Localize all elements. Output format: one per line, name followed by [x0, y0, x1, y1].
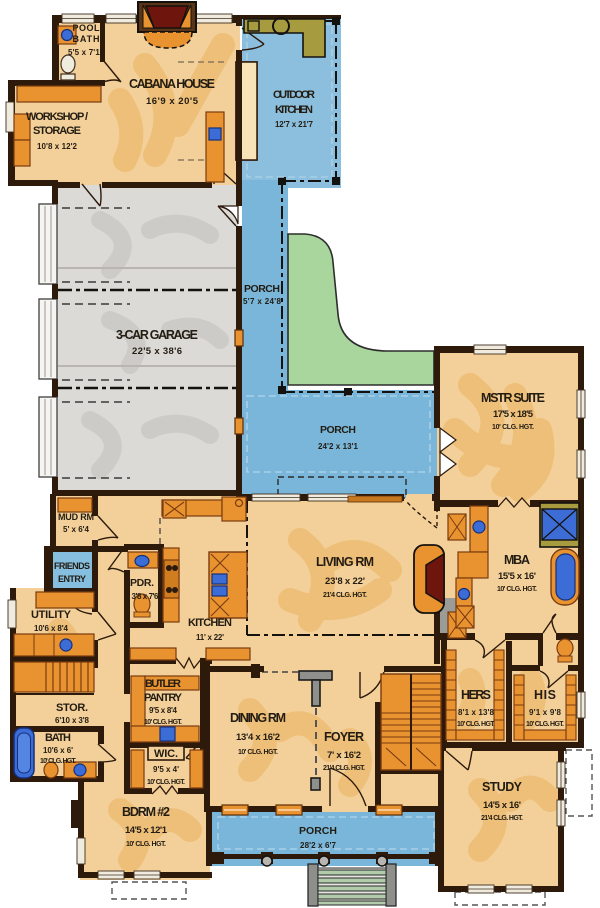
svg-text:5' x 6'4: 5' x 6'4 — [63, 525, 90, 534]
svg-text:10' CLG. HGT.: 10' CLG. HGT. — [40, 758, 76, 765]
svg-text:10' CLG. HGT.: 10' CLG. HGT. — [238, 749, 278, 756]
svg-text:23'8 x 22': 23'8 x 22' — [325, 576, 365, 587]
svg-text:10' CLG. HGT.: 10' CLG. HGT. — [147, 779, 185, 786]
svg-text:MSTR SUITE: MSTR SUITE — [481, 391, 545, 405]
svg-text:POOL: POOL — [73, 23, 101, 33]
svg-text:WORKSHOP /: WORKSHOP / — [26, 111, 88, 123]
svg-text:10' CLG. HGT.: 10' CLG. HGT. — [126, 841, 166, 848]
svg-text:10'6 x 6': 10'6 x 6' — [43, 746, 73, 755]
svg-text:10' CLG. HGT.: 10' CLG. HGT. — [497, 586, 537, 593]
svg-text:MBA: MBA — [504, 553, 530, 567]
svg-text:KITCHEN: KITCHEN — [188, 617, 232, 629]
svg-text:BUTLER: BUTLER — [145, 678, 181, 690]
svg-text:STORAGE: STORAGE — [33, 125, 81, 137]
svg-text:MUD RM: MUD RM — [58, 512, 94, 522]
svg-text:BATH: BATH — [45, 732, 71, 744]
svg-text:14'5 x 12'1: 14'5 x 12'1 — [125, 825, 168, 836]
svg-text:STOR.: STOR. — [56, 702, 88, 714]
svg-text:17'5 x 18'5: 17'5 x 18'5 — [493, 409, 534, 420]
svg-text:WIC.: WIC. — [154, 748, 178, 760]
svg-text:DINING RM: DINING RM — [230, 711, 286, 725]
svg-text:10' CLG. HGT.: 10' CLG. HGT. — [492, 424, 534, 431]
svg-text:12'7 x 21'7: 12'7 x 21'7 — [275, 120, 314, 129]
svg-text:21'4 CLG. HGT.: 21'4 CLG. HGT. — [323, 765, 365, 772]
svg-text:7' x 16'2: 7' x 16'2 — [327, 750, 361, 761]
svg-text:5'7 x 24'8: 5'7 x 24'8 — [243, 297, 282, 306]
svg-text:10' CLG. HGT.: 10' CLG. HGT. — [526, 721, 564, 728]
svg-text:28'2 x 6'7: 28'2 x 6'7 — [300, 841, 337, 850]
svg-text:10'6 x 8'4: 10'6 x 8'4 — [34, 624, 69, 633]
svg-text:FOYER: FOYER — [324, 730, 364, 744]
svg-text:PDR.: PDR. — [130, 577, 154, 589]
svg-text:BATH: BATH — [73, 34, 100, 44]
svg-text:OUTDOOR: OUTDOOR — [273, 89, 315, 101]
svg-text:21'4 CLG. HGT.: 21'4 CLG. HGT. — [481, 815, 523, 822]
svg-text:21'4 CLG. HGT.: 21'4 CLG. HGT. — [323, 592, 367, 599]
svg-text:PORCH: PORCH — [244, 283, 280, 295]
svg-text:10' CLG. HGT.: 10' CLG. HGT. — [457, 721, 495, 728]
svg-text:LIVING RM: LIVING RM — [316, 555, 374, 569]
svg-text:PANTRY: PANTRY — [144, 692, 183, 704]
svg-text:3-CAR GARAGE: 3-CAR GARAGE — [116, 328, 198, 342]
svg-text:PORCH: PORCH — [320, 424, 356, 436]
svg-text:HIS: HIS — [534, 688, 556, 702]
svg-text:9'5 x 4': 9'5 x 4' — [153, 765, 179, 774]
svg-text:6'10 x 3'8: 6'10 x 3'8 — [55, 716, 90, 725]
svg-text:11' x 22': 11' x 22' — [196, 633, 224, 642]
svg-text:HERS: HERS — [461, 688, 491, 702]
svg-text:UTILITY: UTILITY — [31, 609, 72, 621]
svg-text:3'8 x 7'6: 3'8 x 7'6 — [132, 592, 160, 601]
svg-text:BDRM #2: BDRM #2 — [122, 805, 170, 819]
svg-text:FRIENDS: FRIENDS — [54, 561, 90, 571]
svg-text:10' CLG. HGT.: 10' CLG. HGT. — [144, 719, 182, 726]
svg-text:PORCH: PORCH — [299, 825, 337, 837]
svg-text:5'5 x 7'11: 5'5 x 7'11 — [68, 48, 105, 57]
svg-text:9'5 x 8'4: 9'5 x 8'4 — [149, 706, 178, 715]
svg-text:14'5 x 16': 14'5 x 16' — [483, 800, 521, 811]
svg-text:10'8 x 12'2: 10'8 x 12'2 — [37, 142, 78, 151]
svg-text:13'4 x 16'2: 13'4 x 16'2 — [236, 732, 280, 743]
svg-text:CABANA HOUSE: CABANA HOUSE — [129, 77, 215, 91]
svg-text:ENTRY: ENTRY — [58, 574, 86, 584]
svg-text:STUDY: STUDY — [482, 780, 523, 794]
svg-text:24'2 x 13'1: 24'2 x 13'1 — [318, 442, 359, 451]
svg-text:15'5 x 16': 15'5 x 16' — [498, 571, 536, 582]
svg-text:9'1 x 9'8: 9'1 x 9'8 — [529, 708, 562, 717]
svg-text:8'1 x 13'8: 8'1 x 13'8 — [458, 708, 495, 717]
svg-text:16'9 x 20'5: 16'9 x 20'5 — [146, 96, 199, 107]
svg-text:22'5 x 38'6: 22'5 x 38'6 — [132, 346, 182, 357]
svg-text:KITCHEN: KITCHEN — [275, 104, 313, 116]
